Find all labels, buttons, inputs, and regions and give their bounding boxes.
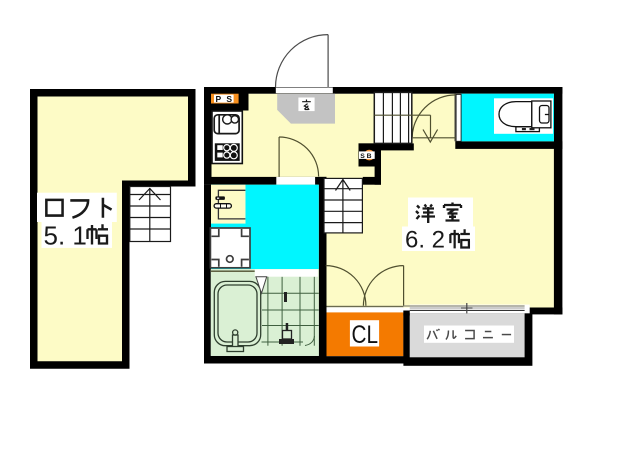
svg-text:CL: CL — [352, 321, 379, 349]
svg-text:P S: P S — [216, 94, 234, 104]
svg-text:6. 2: 6. 2 — [405, 227, 445, 254]
svg-text:5. 1: 5. 1 — [44, 221, 87, 251]
svg-text:S B: S B — [360, 153, 371, 160]
